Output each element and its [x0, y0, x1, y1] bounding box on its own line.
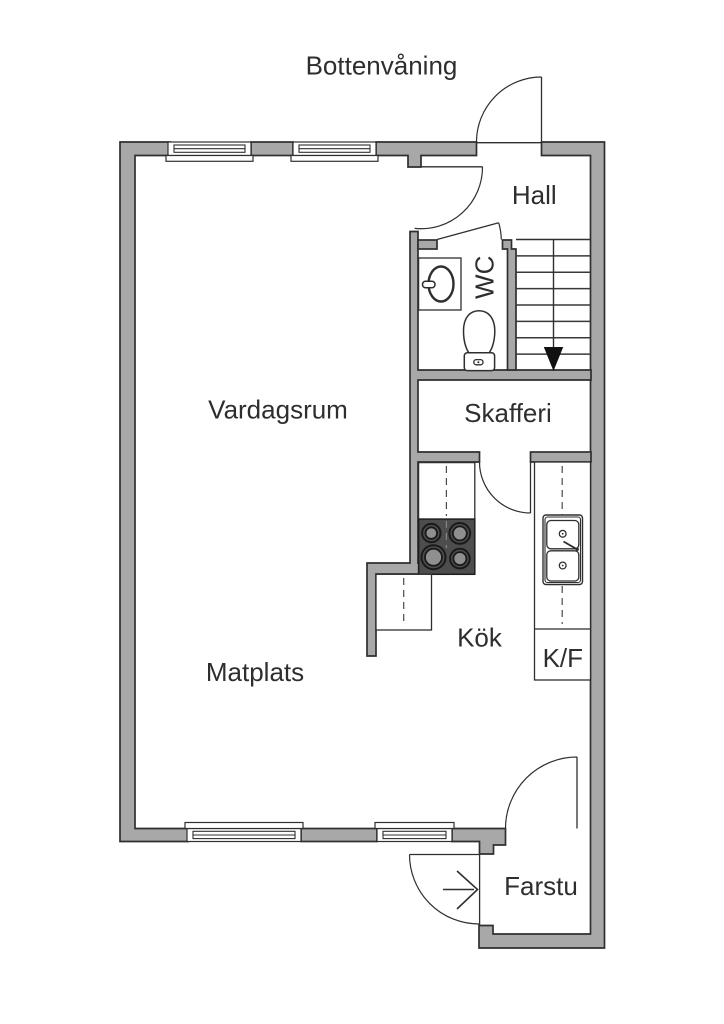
svg-text:Kök: Kök [457, 623, 503, 653]
svg-text:Matplats: Matplats [206, 657, 304, 687]
svg-text:K/F: K/F [543, 643, 583, 673]
svg-text:Vardagsrum: Vardagsrum [208, 395, 348, 425]
svg-text:Skafferi: Skafferi [464, 398, 552, 428]
svg-text:Bottenvåning: Bottenvåning [306, 51, 458, 81]
svg-text:WC: WC [470, 256, 500, 299]
svg-text:Hall: Hall [512, 180, 557, 210]
svg-text:Farstu: Farstu [504, 871, 578, 901]
